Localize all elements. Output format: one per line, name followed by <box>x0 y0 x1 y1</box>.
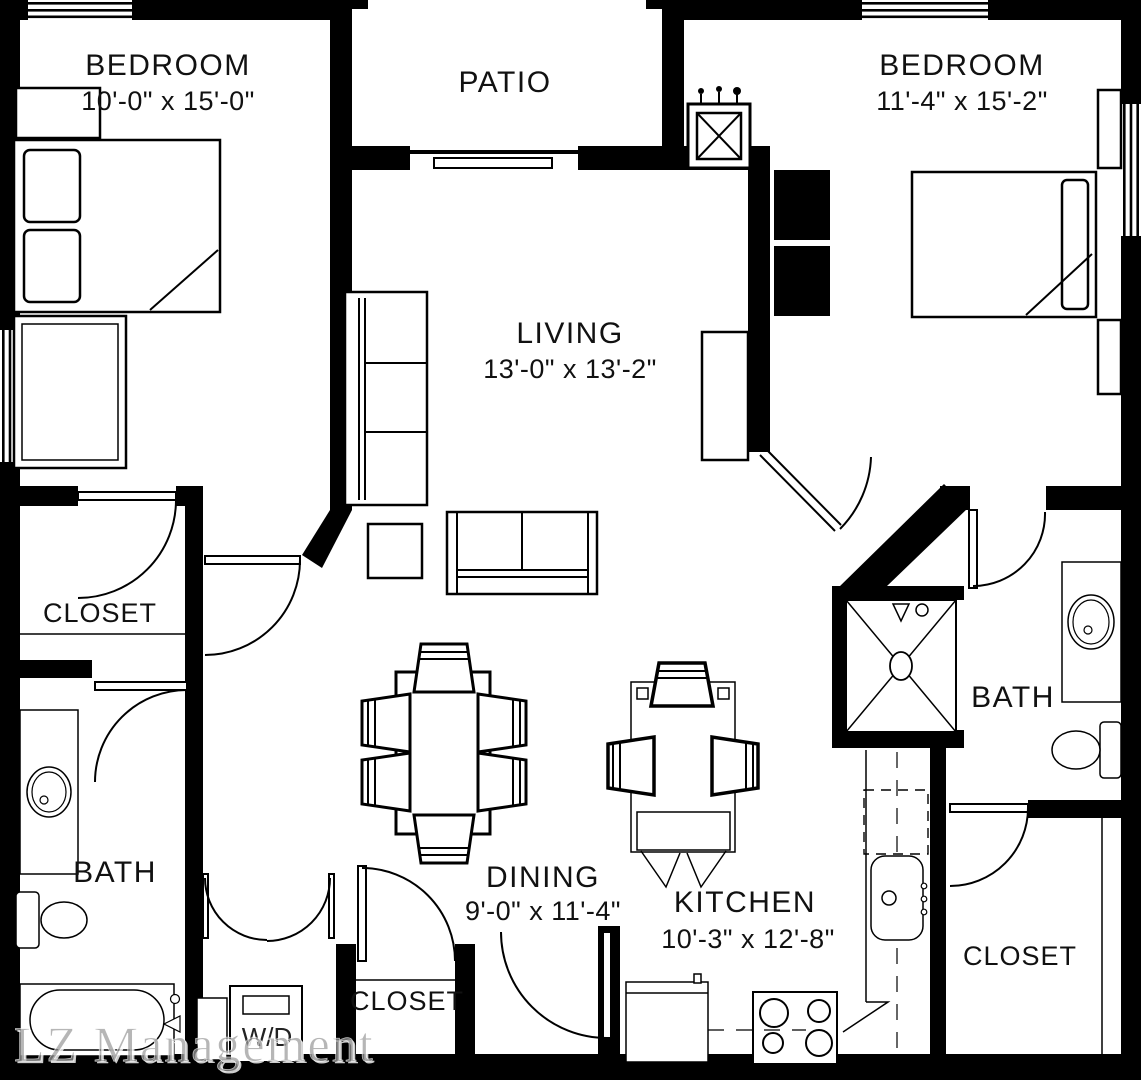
floor-plan: BEDROOM 10'-0" x 15'-0" PATIO BEDROOM 11… <box>0 0 1141 1080</box>
door-double-wd <box>203 874 334 941</box>
wardrobe <box>774 246 830 316</box>
door-bath-left <box>95 682 187 782</box>
shower <box>846 600 956 732</box>
bed <box>912 172 1096 317</box>
closet-right-label: CLOSET <box>963 941 1077 971</box>
chair <box>362 753 410 811</box>
door-bath-right <box>969 510 1045 588</box>
living-label: LIVING <box>516 317 623 350</box>
chair <box>478 694 526 752</box>
kitchen-label: KITCHEN <box>674 886 816 919</box>
toilet <box>1052 722 1121 778</box>
side-table <box>368 524 422 578</box>
bath-left-label: BATH <box>73 856 157 889</box>
watermark-text: LZ Management <box>14 1016 375 1072</box>
refrigerator <box>626 974 708 1062</box>
upper-cabinet <box>864 790 928 854</box>
door-closet-right <box>950 804 1028 886</box>
chair <box>608 737 654 795</box>
bath-right-label: BATH <box>971 681 1055 714</box>
sofa <box>345 292 427 505</box>
bedroom-left-label: BEDROOM <box>85 49 251 82</box>
chair <box>651 663 713 706</box>
door-closet-hall <box>358 866 455 961</box>
kitchen-table-set <box>608 663 758 887</box>
nightstand <box>1098 320 1121 394</box>
window-bedroom-right-top <box>862 0 988 20</box>
kitchen-sink <box>871 856 927 940</box>
dining-dims: 9'-0" x 11'-4" <box>465 896 621 926</box>
bedroom-right-dims: 11'-4" x 15'-2" <box>876 86 1048 116</box>
bedroom-left-furniture <box>14 88 220 468</box>
chair <box>712 737 758 795</box>
chair <box>362 694 410 752</box>
bedroom-right-label: BEDROOM <box>879 49 1045 82</box>
watermark: LZ Management LZ Management <box>14 1016 377 1074</box>
window-bedroom-left-top <box>28 0 132 20</box>
closet-hall-label: CLOSET <box>350 986 464 1016</box>
nightstand <box>1098 90 1121 168</box>
living-dims: 13'-0" x 13'-2" <box>483 354 657 384</box>
door-closet-left <box>78 492 176 598</box>
vanity-sink <box>20 710 78 874</box>
bench <box>637 812 730 850</box>
kitchen-dims: 10'-3" x 12'-8" <box>661 924 835 954</box>
toilet <box>16 892 87 948</box>
door-hall <box>205 556 300 655</box>
loveseat <box>447 512 597 594</box>
stove <box>753 992 837 1064</box>
vanity-sink <box>1062 562 1121 702</box>
closet-left-label: CLOSET <box>43 598 157 628</box>
window-bedroom-right-side <box>1121 104 1141 236</box>
patio-sliding-door <box>408 150 580 168</box>
bedroom-left-dims: 10'-0" x 15'-0" <box>81 86 255 116</box>
dining-set <box>362 644 526 863</box>
patio-label: PATIO <box>458 66 551 99</box>
cabinet <box>702 332 748 460</box>
bed <box>14 140 220 312</box>
dining-label: DINING <box>486 861 600 894</box>
mechanical-shaft <box>688 86 750 168</box>
door-entry <box>501 932 611 1038</box>
door-bedroom-right <box>760 449 871 531</box>
wardrobe <box>774 170 830 240</box>
chair <box>478 753 526 811</box>
dresser <box>14 316 126 468</box>
